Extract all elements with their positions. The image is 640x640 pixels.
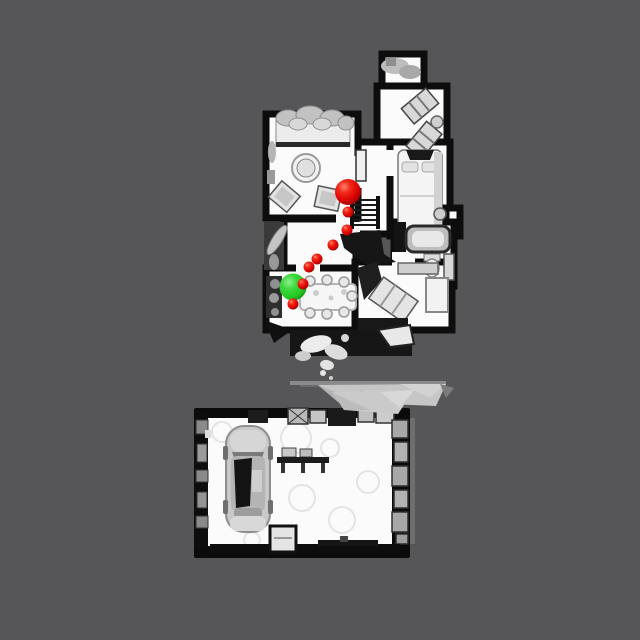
garage [194, 390, 415, 558]
bathroom-wall-block [394, 222, 406, 252]
bed-headboard-gap [406, 150, 434, 160]
area-rug [426, 278, 448, 312]
waypoint-sphere-7 [288, 299, 299, 310]
bedroom-stool [434, 208, 446, 220]
waypoint-sphere-3 [328, 240, 339, 251]
bedroom-furniture [398, 150, 446, 230]
sideboard [398, 263, 438, 274]
coffee-table-top [297, 159, 315, 177]
car-seat [252, 470, 262, 492]
waypoint-sphere-2 [342, 225, 353, 236]
car-open-interior [234, 458, 252, 508]
vanity-sink [444, 254, 454, 280]
bed-pillow-left [402, 162, 418, 172]
scene-viewport[interactable] [0, 0, 640, 640]
bathtub-basin [412, 231, 444, 247]
closet-clutter-2 [399, 65, 421, 79]
scene-canvas [0, 0, 640, 640]
waypoint-sphere-4 [312, 254, 323, 265]
waypoint-sphere-1 [343, 207, 354, 218]
car-hood [230, 430, 266, 452]
car-trunk [230, 516, 266, 531]
waypoint-sphere-5 [304, 262, 315, 273]
wall-cabinet [267, 170, 275, 184]
waypoint-sphere-6 [298, 279, 309, 290]
sofa-shadow [276, 142, 350, 147]
car [223, 426, 273, 532]
start-sphere [335, 179, 361, 205]
closet-clutter-3 [386, 58, 396, 66]
wall-shelf [268, 141, 276, 163]
storage-crate-2 [310, 410, 326, 423]
side-stool [431, 116, 443, 128]
garage-door-recess [328, 408, 356, 426]
garage-right-shelves [392, 418, 415, 544]
door-leaf [356, 150, 366, 181]
